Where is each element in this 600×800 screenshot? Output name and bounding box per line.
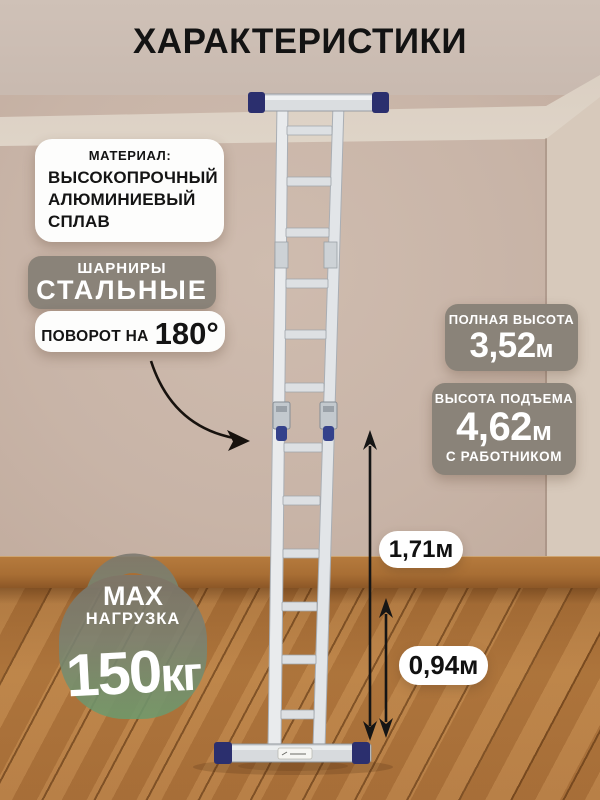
max-load-line1: MAX bbox=[103, 581, 163, 611]
rotation-box: ПОВОРОТ НА 180° bbox=[35, 311, 225, 352]
lift-height-value: 4,62 bbox=[456, 405, 532, 449]
rotation-prefix: ПОВОРОТ НА bbox=[41, 328, 148, 346]
full-height-label: ПОЛНАЯ ВЫСОТА bbox=[445, 312, 578, 327]
lift-height-box: ВЫСОТА ПОДЪЕМА 4,62м С РАБОТНИКОМ bbox=[432, 383, 576, 475]
full-height-value: 3,52 bbox=[470, 326, 536, 365]
material-box: МАТЕРИАЛ: ВЫСОКОПРОЧНЫЙ АЛЮМИНИЕВЫЙ СПЛА… bbox=[35, 139, 224, 242]
max-load-line2: НАГРУЗКА bbox=[86, 610, 181, 628]
lift-height-note: С РАБОТНИКОМ bbox=[432, 449, 576, 464]
hinges-label-big: СТАЛЬНЫЕ bbox=[28, 277, 216, 304]
material-line: СПЛАВ bbox=[48, 211, 212, 233]
lift-height-label: ВЫСОТА ПОДЪЕМА bbox=[432, 391, 576, 406]
max-load-badge: MAX НАГРУЗКА 150кг bbox=[57, 521, 209, 723]
material-line: ВЫСОКОПРОЧНЫЙ bbox=[48, 167, 212, 189]
dimension-pill-long: 1,71м bbox=[379, 531, 463, 568]
rotation-value: 180° bbox=[155, 316, 219, 352]
product-infographic: MAX НАГРУЗКА 150кг ХАРАКТЕРИСТИКИ МАТЕРИ… bbox=[0, 0, 600, 800]
material-heading: МАТЕРИАЛ: bbox=[48, 148, 212, 163]
full-height-unit: м bbox=[536, 336, 554, 363]
hinges-box: ШАРНИРЫ СТАЛЬНЫЕ bbox=[28, 256, 216, 309]
lift-height-unit: м bbox=[532, 416, 552, 446]
page-title: ХАРАКТЕРИСТИКИ bbox=[0, 22, 600, 62]
material-line: АЛЮМИНИЕВЫЙ bbox=[48, 189, 212, 211]
full-height-box: ПОЛНАЯ ВЫСОТА 3,52м bbox=[445, 304, 578, 371]
dimension-pill-short: 0,94м bbox=[399, 646, 488, 685]
